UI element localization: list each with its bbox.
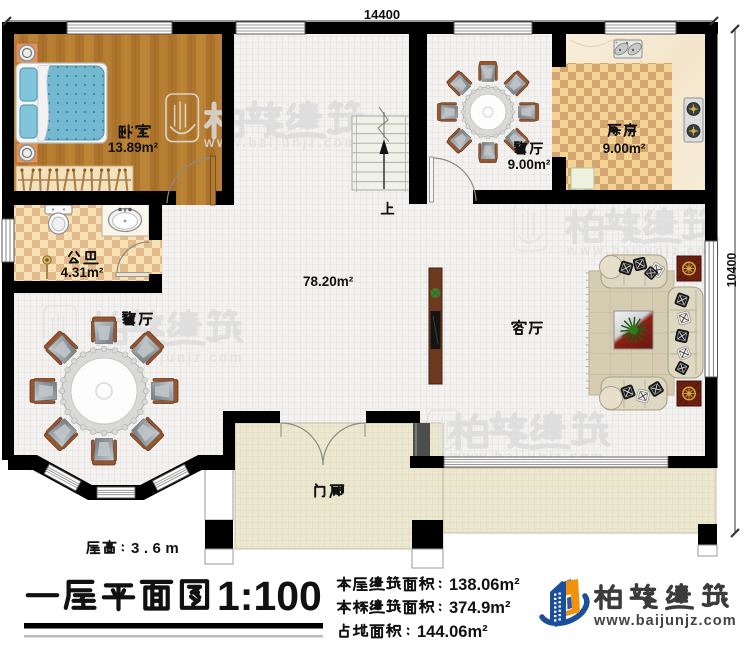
svg-text:144.06m²: 144.06m² (417, 623, 488, 641)
svg-text:3.6m: 3.6m (131, 540, 183, 557)
svg-text:14400: 14400 (364, 7, 400, 22)
svg-text:1:100: 1:100 (217, 573, 322, 619)
svg-text:4.31m²: 4.31m² (61, 265, 104, 280)
svg-text:138.06m²: 138.06m² (449, 576, 520, 594)
svg-text:374.9m²: 374.9m² (449, 599, 511, 617)
svg-text:13.89m²: 13.89m² (108, 140, 159, 155)
svg-text:www.baijunjz.com: www.baijunjz.com (593, 613, 737, 629)
svg-text:9.00m²: 9.00m² (603, 141, 646, 156)
svg-text:10400: 10400 (725, 253, 739, 288)
svg-text:78.20m²: 78.20m² (303, 274, 354, 289)
svg-text:9.00m²: 9.00m² (508, 157, 551, 172)
